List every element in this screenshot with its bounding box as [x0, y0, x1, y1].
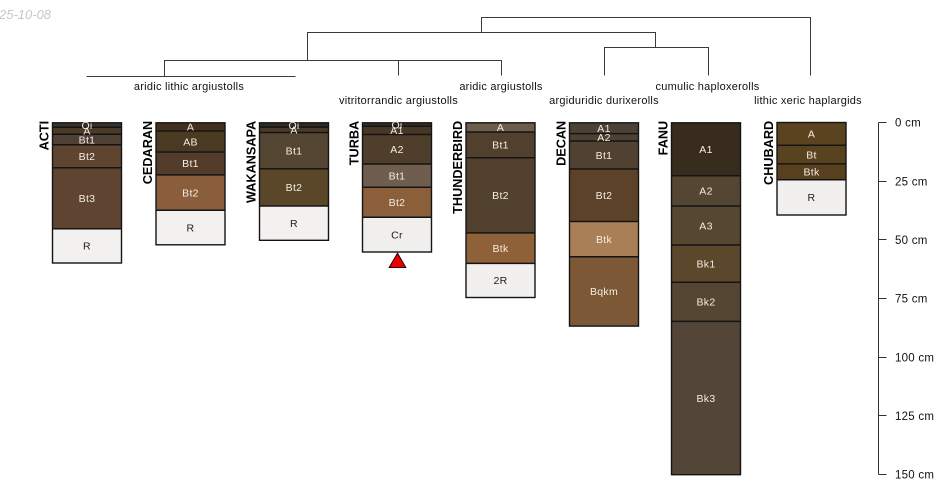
svg-text:TURBA: TURBA: [348, 121, 362, 165]
svg-text:Bt3: Bt3: [79, 193, 96, 205]
svg-text:Bt1: Bt1: [492, 140, 509, 152]
svg-text:Btk: Btk: [492, 243, 509, 255]
svg-text:50 cm: 50 cm: [895, 235, 928, 247]
svg-text:R: R: [808, 192, 816, 204]
svg-text:A: A: [290, 125, 297, 137]
svg-text:aridic lithic argiustolls: aridic lithic argiustolls: [134, 81, 244, 93]
svg-text:A: A: [497, 122, 504, 134]
svg-text:THUNDERBIRD: THUNDERBIRD: [451, 121, 465, 214]
svg-text:Bt2: Bt2: [286, 182, 303, 194]
svg-text:cumulic haploxerolls: cumulic haploxerolls: [655, 81, 759, 93]
svg-text:Bt: Bt: [806, 149, 817, 161]
svg-text:Bt2: Bt2: [79, 151, 96, 163]
svg-text:FANU: FANU: [657, 121, 671, 156]
svg-text:Bt1: Bt1: [286, 146, 303, 158]
svg-text:CEDARAN: CEDARAN: [141, 121, 155, 184]
svg-text:ACTI: ACTI: [38, 121, 52, 151]
svg-text:Bt2: Bt2: [492, 190, 509, 202]
svg-text:75 cm: 75 cm: [895, 294, 928, 306]
svg-text:Btk: Btk: [596, 234, 613, 246]
svg-text:AB: AB: [183, 136, 198, 148]
svg-text:R: R: [290, 218, 298, 230]
svg-text:A3: A3: [699, 220, 712, 232]
svg-text:argiduridic durixerolls: argiduridic durixerolls: [549, 95, 659, 107]
svg-text:Bk3: Bk3: [697, 393, 716, 405]
svg-text:A: A: [808, 129, 815, 141]
svg-text:Bt1: Bt1: [79, 134, 96, 146]
svg-text:A1: A1: [699, 144, 712, 156]
svg-text:A1: A1: [390, 125, 403, 137]
svg-text:Bt1: Bt1: [182, 158, 199, 170]
svg-text:Bt1: Bt1: [389, 171, 406, 183]
svg-text:Cr: Cr: [391, 229, 403, 241]
svg-text:A2: A2: [699, 186, 712, 198]
svg-text:Bt2: Bt2: [182, 187, 199, 199]
svg-text:A2: A2: [390, 144, 403, 156]
svg-text:0 cm: 0 cm: [895, 118, 921, 130]
svg-text:25-10-08: 25-10-08: [0, 7, 52, 22]
svg-text:125 cm: 125 cm: [895, 411, 934, 423]
svg-text:DECAN: DECAN: [555, 121, 569, 166]
svg-text:Bt2: Bt2: [389, 197, 406, 209]
svg-text:R: R: [83, 241, 91, 253]
svg-text:25 cm: 25 cm: [895, 176, 928, 188]
svg-text:CHUBARD: CHUBARD: [762, 121, 776, 185]
svg-text:WAKANSAPA: WAKANSAPA: [245, 121, 259, 203]
svg-text:aridic argiustolls: aridic argiustolls: [459, 81, 543, 93]
svg-text:Bk1: Bk1: [697, 258, 716, 270]
svg-text:Bt2: Bt2: [596, 190, 613, 202]
svg-text:Bk2: Bk2: [697, 297, 716, 309]
svg-text:vitritorrandic argiustolls: vitritorrandic argiustolls: [339, 95, 458, 107]
svg-text:Btk: Btk: [803, 167, 820, 179]
svg-text:A: A: [187, 122, 194, 134]
svg-text:100 cm: 100 cm: [895, 352, 934, 364]
svg-text:150 cm: 150 cm: [895, 470, 934, 482]
svg-text:2R: 2R: [493, 275, 507, 287]
svg-text:R: R: [187, 222, 195, 234]
svg-text:lithic xeric haplargids: lithic xeric haplargids: [754, 95, 862, 107]
svg-text:Bqkm: Bqkm: [590, 286, 618, 298]
svg-text:A2: A2: [597, 132, 610, 144]
svg-text:Bt1: Bt1: [596, 150, 613, 162]
